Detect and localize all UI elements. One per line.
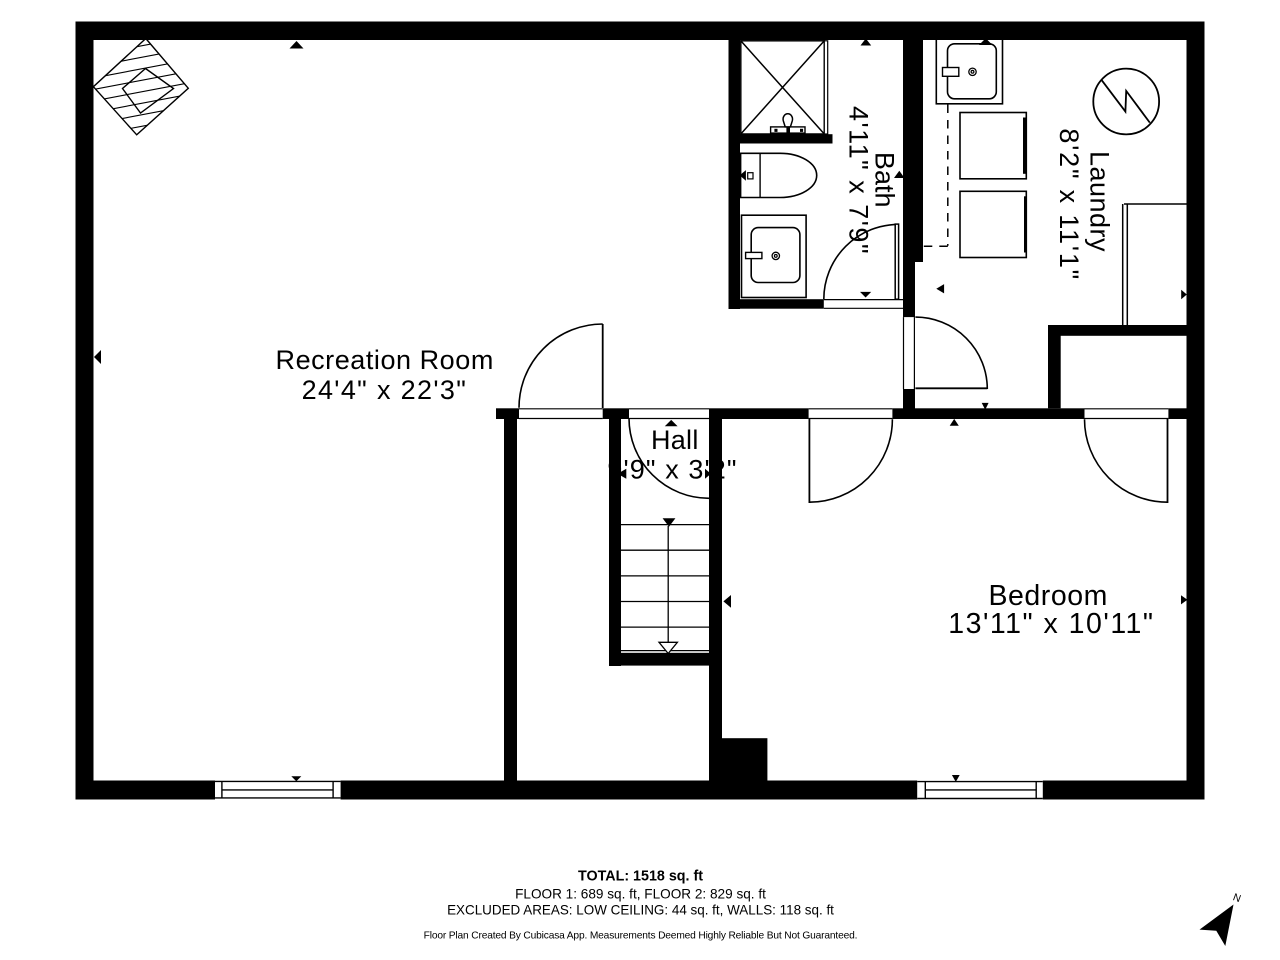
svg-text:Hall: Hall (651, 425, 699, 455)
svg-text:8'2" x 11'1": 8'2" x 11'1" (1054, 128, 1084, 281)
svg-text:24'4" x 22'3": 24'4" x 22'3" (302, 375, 468, 405)
svg-text:Floor Plan Created By Cubicasa: Floor Plan Created By Cubicasa App. Meas… (424, 930, 858, 941)
svg-text:Recreation Room: Recreation Room (276, 345, 494, 375)
svg-text:13'11" x 10'11": 13'11" x 10'11" (948, 608, 1154, 640)
svg-text:EXCLUDED AREAS: LOW CEILING: 4: EXCLUDED AREAS: LOW CEILING: 44 sq. ft, … (447, 902, 834, 917)
svg-text:4'11" x 7'9": 4'11" x 7'9" (843, 106, 873, 255)
svg-text:FLOOR 1: 689 sq. ft, FLOOR 2:: FLOOR 1: 689 sq. ft, FLOOR 2: 829 sq. ft (515, 886, 766, 901)
svg-text:TOTAL: 1518 sq. ft: TOTAL: 1518 sq. ft (578, 869, 703, 885)
svg-text:Laundry: Laundry (1084, 151, 1114, 252)
